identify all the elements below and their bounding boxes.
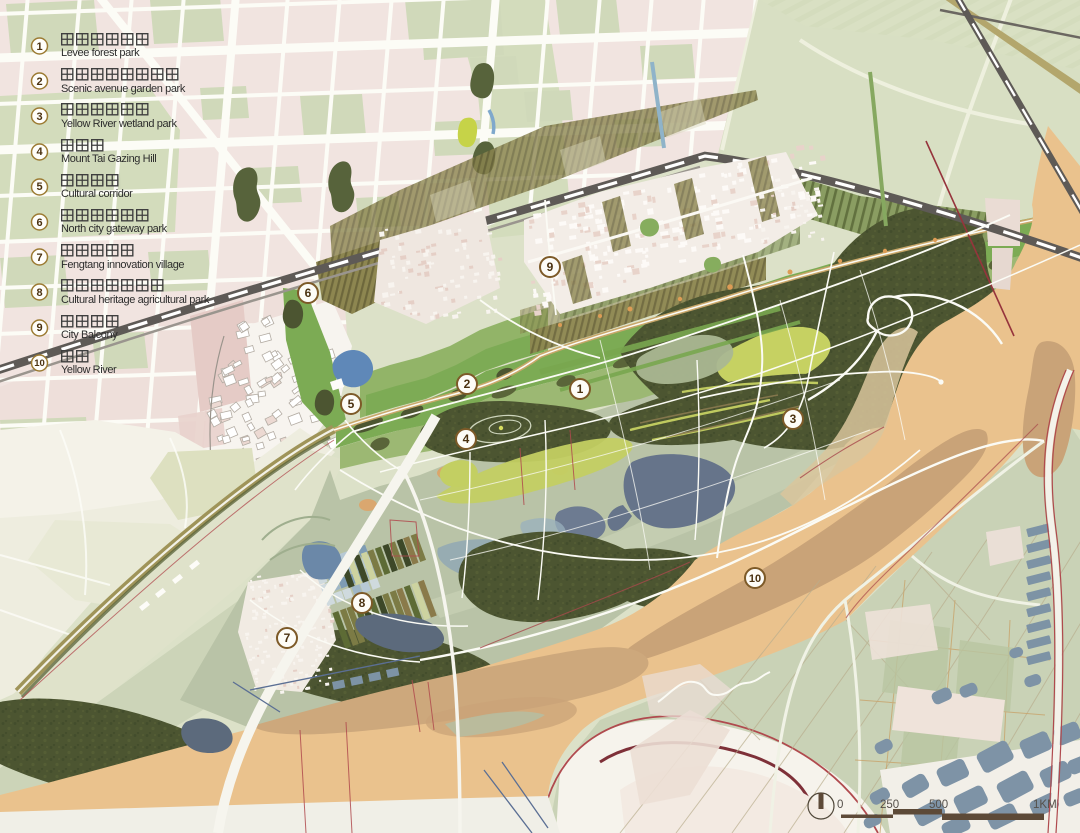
svg-text:9: 9 (547, 260, 554, 274)
svg-text:8: 8 (359, 596, 366, 610)
svg-text:3: 3 (36, 111, 42, 123)
svg-text:7: 7 (36, 252, 42, 264)
svg-text:0: 0 (837, 799, 843, 811)
svg-text:Yellow River wetland park: Yellow River wetland park (61, 118, 177, 130)
svg-text:9: 9 (36, 322, 42, 334)
svg-text:10: 10 (749, 573, 761, 585)
svg-text:Scenic avenue garden park: Scenic avenue garden park (61, 83, 186, 95)
svg-text:4: 4 (463, 432, 470, 446)
svg-text:City Balcony: City Balcony (61, 329, 118, 341)
svg-text:2: 2 (464, 377, 471, 391)
svg-text:250: 250 (880, 799, 899, 811)
svg-text:10: 10 (34, 358, 45, 369)
svg-text:4: 4 (36, 146, 43, 158)
svg-text:3: 3 (790, 412, 797, 426)
svg-text:Cultural heritage agricultural: Cultural heritage agricultural park (61, 294, 210, 306)
svg-text:Cultural corridor: Cultural corridor (61, 188, 133, 200)
svg-text:North city gateway park: North city gateway park (61, 223, 168, 235)
svg-text:5: 5 (348, 397, 355, 411)
svg-text:6: 6 (36, 217, 42, 229)
svg-text:Levee forest park: Levee forest park (61, 47, 140, 59)
svg-text:Yellow River: Yellow River (61, 364, 117, 376)
svg-text:1: 1 (36, 41, 42, 53)
svg-text:Fengtang innovation village: Fengtang innovation village (61, 259, 184, 271)
svg-text:2: 2 (36, 76, 42, 88)
svg-text:1KM: 1KM (1033, 799, 1057, 811)
svg-text:Mount Tai Gazing Hill: Mount Tai Gazing Hill (61, 153, 156, 165)
svg-text:8: 8 (36, 287, 42, 299)
svg-text:7: 7 (284, 631, 291, 645)
svg-text:5: 5 (36, 181, 42, 193)
svg-text:6: 6 (305, 286, 312, 300)
svg-text:1: 1 (577, 382, 584, 396)
svg-text:500: 500 (929, 799, 948, 811)
